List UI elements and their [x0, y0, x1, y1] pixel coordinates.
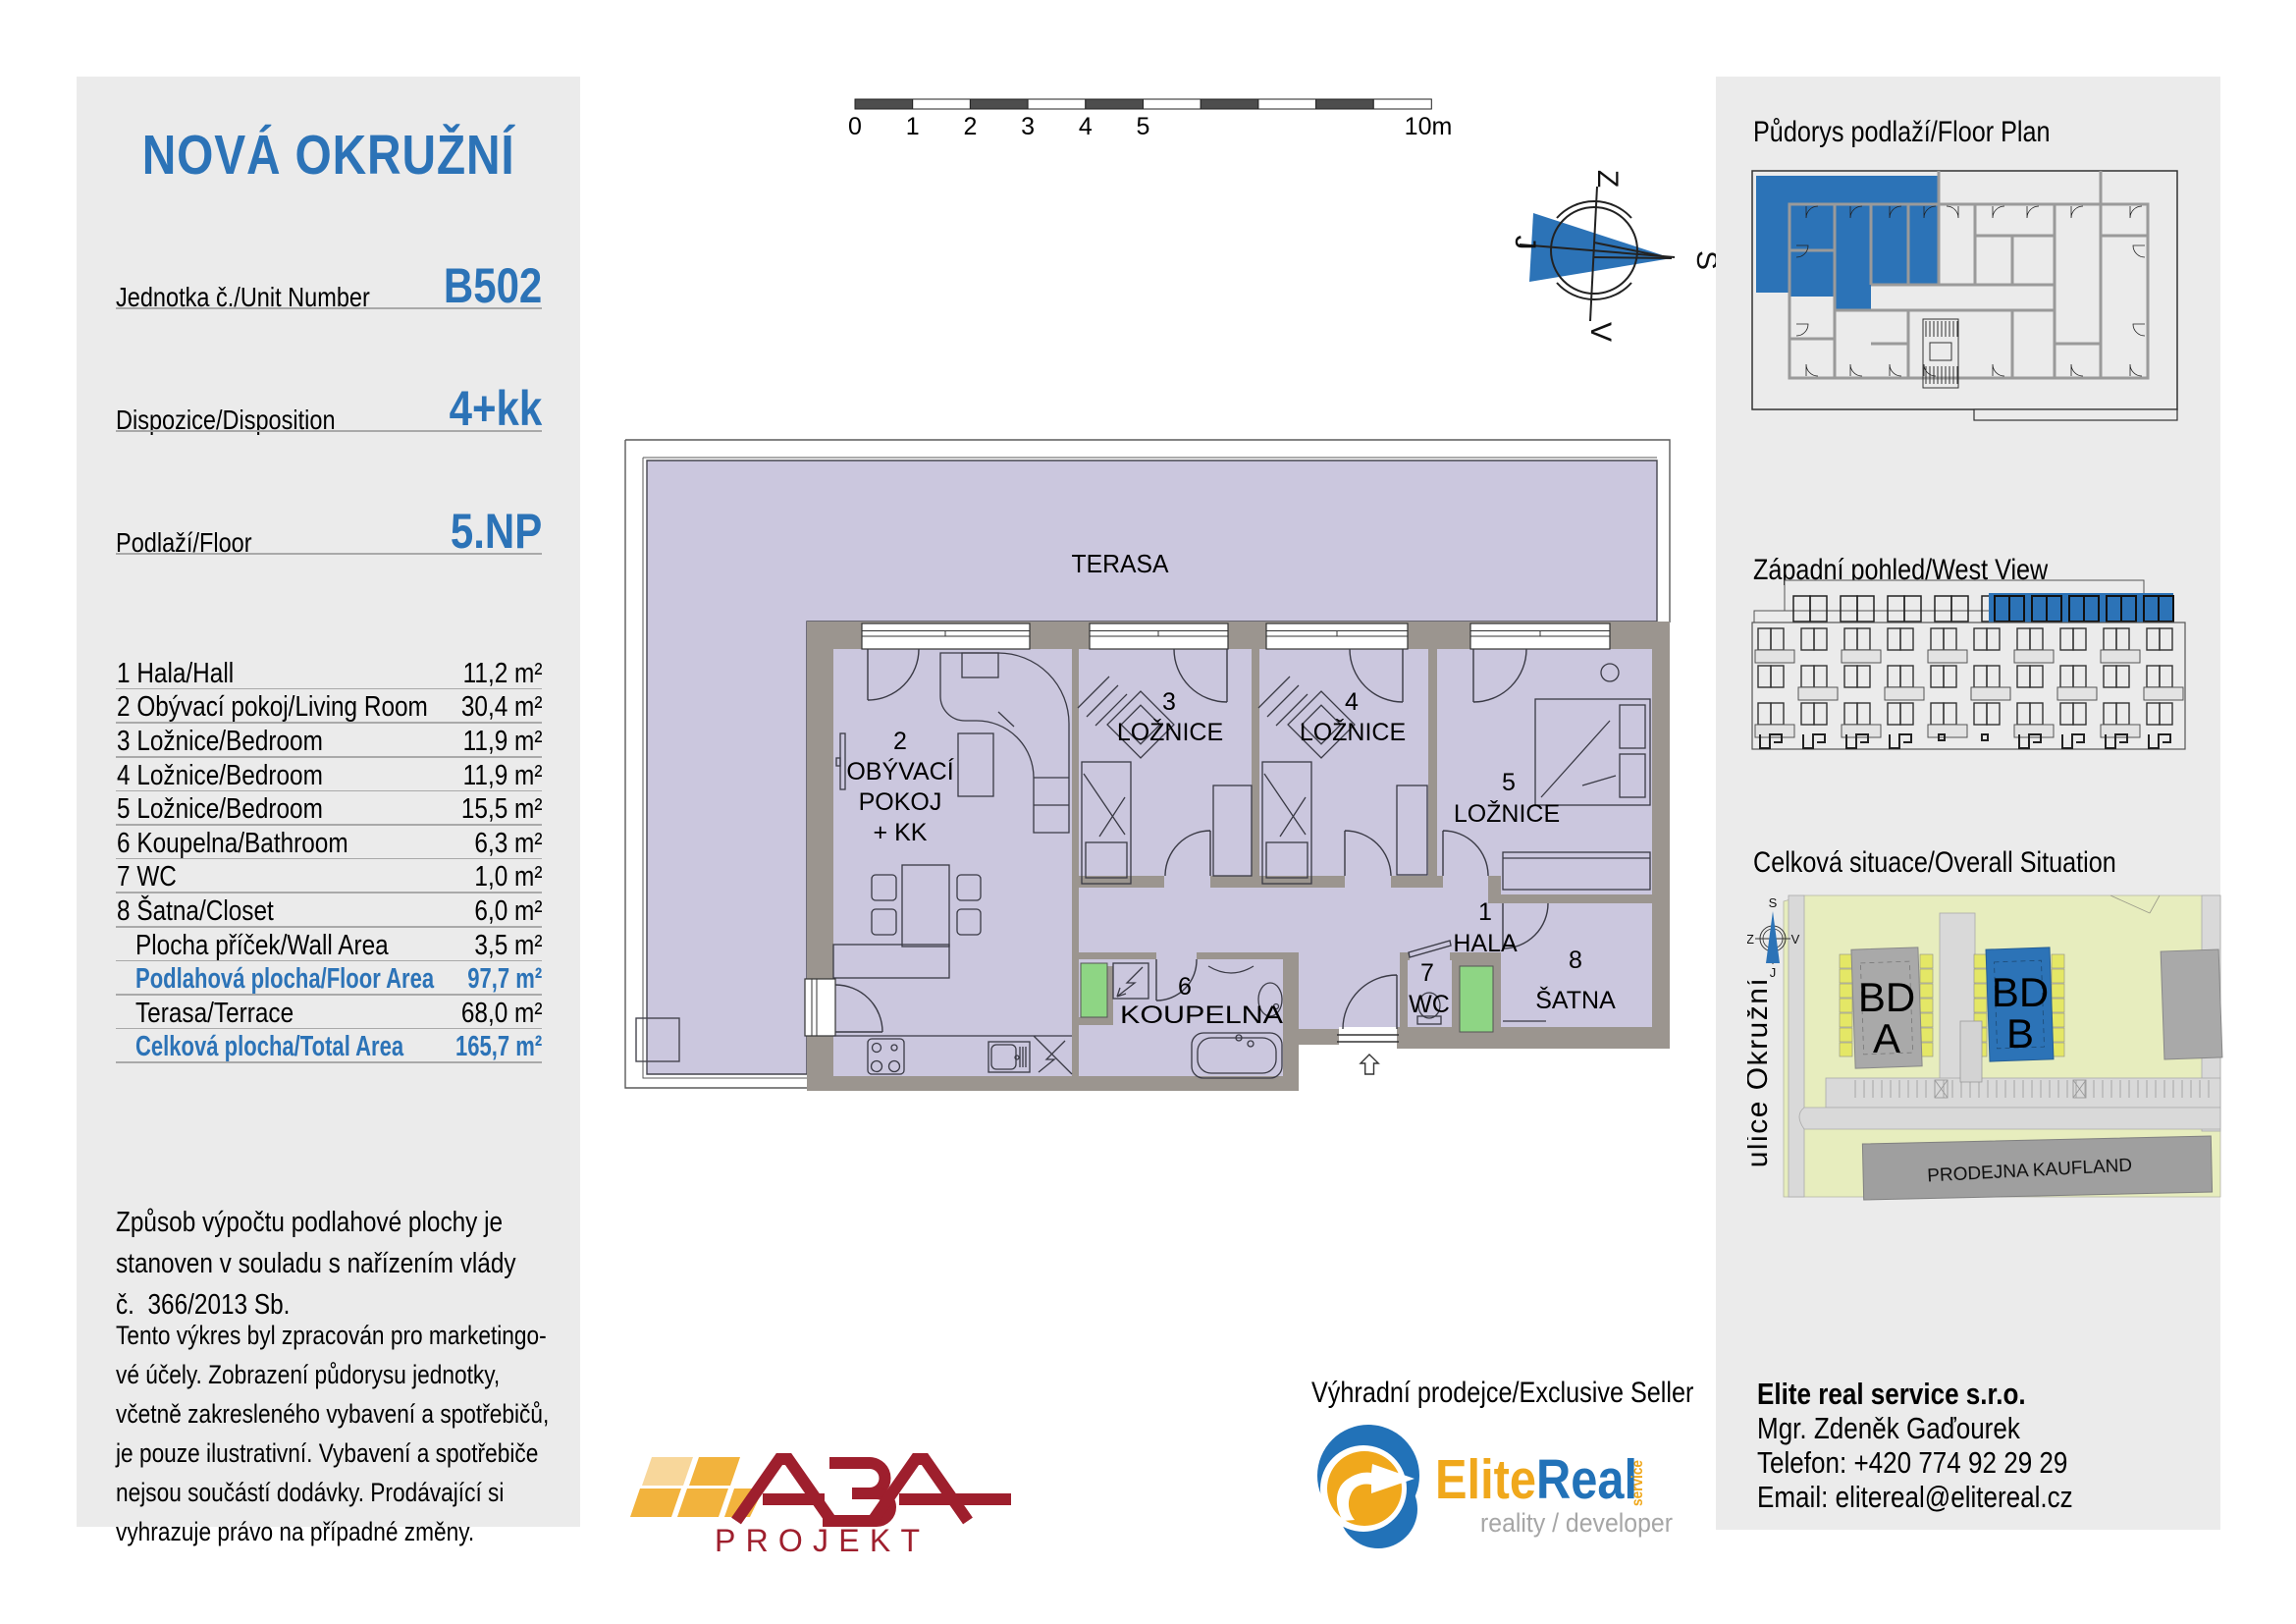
svg-text:ulice Okružní: ulice Okružní [1747, 977, 1774, 1168]
svg-text:2: 2 [893, 728, 907, 755]
svg-text:EliteReal: EliteReal [1435, 1448, 1637, 1511]
svg-text:OBÝVACÍ: OBÝVACÍ [846, 757, 953, 785]
svg-text:reality / developer: reality / developer [1480, 1508, 1673, 1538]
svg-text:+ KK: + KK [874, 819, 928, 846]
svg-text:4: 4 [1079, 113, 1093, 140]
svg-text:LOŽNICE: LOŽNICE [1300, 718, 1406, 746]
svg-text:3: 3 [1162, 688, 1176, 716]
svg-text:KOUPELNA: KOUPELNA [1120, 1001, 1283, 1029]
svg-text:Z: Z [1747, 932, 1754, 947]
svg-text:1: 1 [906, 113, 920, 140]
svg-text:J: J [1770, 965, 1777, 980]
svg-text:2: 2 [963, 113, 977, 140]
svg-text:5: 5 [1502, 769, 1516, 796]
svg-text:0: 0 [848, 113, 862, 140]
svg-text:service: service [1629, 1460, 1646, 1506]
svg-text:7: 7 [1420, 959, 1434, 987]
svg-text:1: 1 [1478, 898, 1492, 926]
svg-text:HALA: HALA [1453, 930, 1518, 957]
svg-text:V: V [1584, 322, 1617, 342]
svg-text:3: 3 [1021, 113, 1035, 140]
svg-text:V: V [1791, 932, 1800, 947]
svg-text:4: 4 [1345, 688, 1359, 716]
svg-text:Z: Z [1591, 170, 1624, 188]
svg-text:S: S [1769, 895, 1778, 910]
svg-text:BD: BD [1858, 974, 1915, 1020]
svg-text:PROJEKT: PROJEKT [715, 1523, 929, 1558]
svg-text:WC: WC [1409, 991, 1450, 1018]
svg-text:LOŽNICE: LOŽNICE [1454, 799, 1560, 828]
svg-text:J: J [1509, 236, 1541, 250]
svg-text:ŠATNA: ŠATNA [1535, 986, 1616, 1014]
svg-text:POKOJ: POKOJ [859, 788, 942, 816]
svg-text:6: 6 [1178, 973, 1192, 1001]
svg-text:B: B [2006, 1010, 2034, 1056]
svg-text:5: 5 [1137, 113, 1150, 140]
svg-text:TERASA: TERASA [1072, 549, 1170, 578]
svg-text:10m: 10m [1405, 113, 1453, 140]
svg-text:LOŽNICE: LOŽNICE [1117, 718, 1223, 746]
svg-text:8: 8 [1569, 947, 1582, 974]
svg-text:A: A [1873, 1015, 1900, 1061]
svg-text:BD: BD [1992, 969, 2049, 1015]
